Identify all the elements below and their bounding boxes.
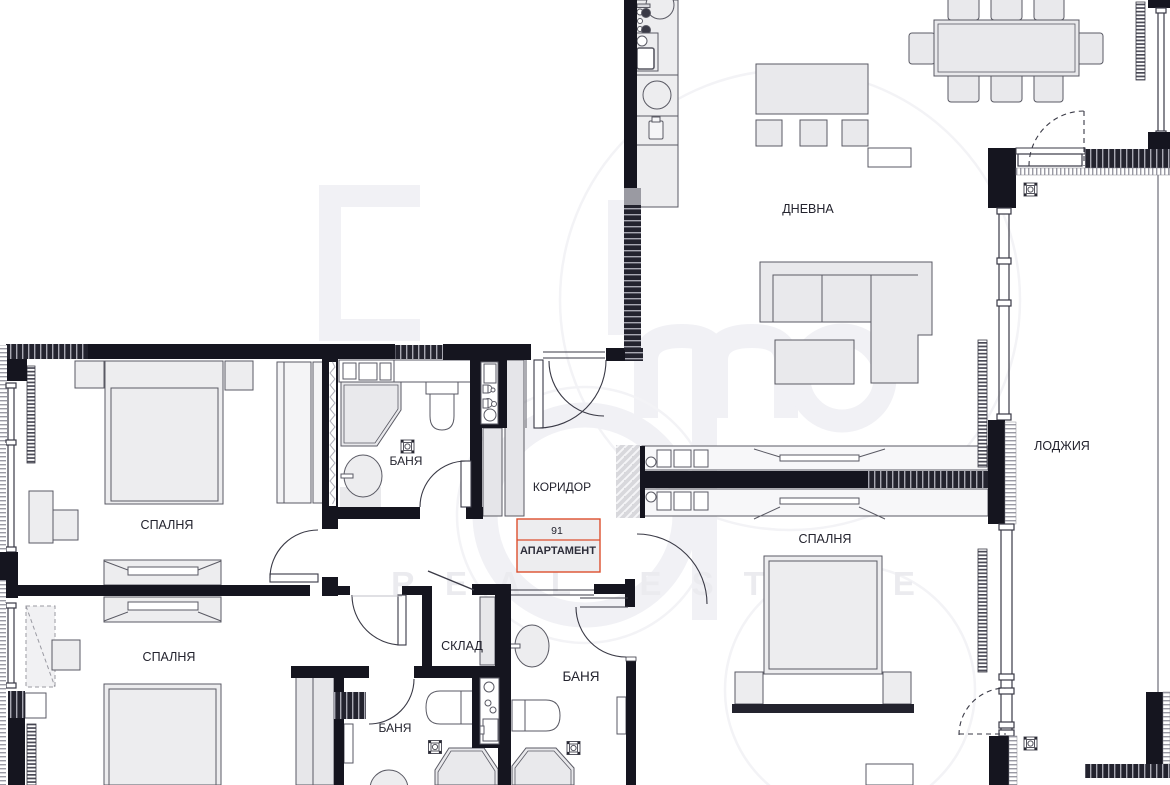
svg-text:АПАРТАМЕНТ: АПАРТАМЕНТ [520,545,596,557]
svg-text:КОРИДОР: КОРИДОР [533,480,591,494]
svg-text:БАНЯ: БАНЯ [379,721,412,735]
svg-text:ЛОДЖИЯ: ЛОДЖИЯ [1034,439,1090,453]
svg-text:СКЛАД: СКЛАД [441,639,483,653]
svg-text:БАНЯ: БАНЯ [390,454,423,468]
svg-text:БАНЯ: БАНЯ [562,669,599,684]
svg-text:СПАЛНЯ: СПАЛНЯ [141,518,194,532]
svg-text:СПАЛНЯ: СПАЛНЯ [143,650,196,664]
svg-text:ДНЕВНА: ДНЕВНА [782,202,834,216]
svg-text:91: 91 [551,525,563,537]
svg-text:СПАЛНЯ: СПАЛНЯ [799,532,852,546]
